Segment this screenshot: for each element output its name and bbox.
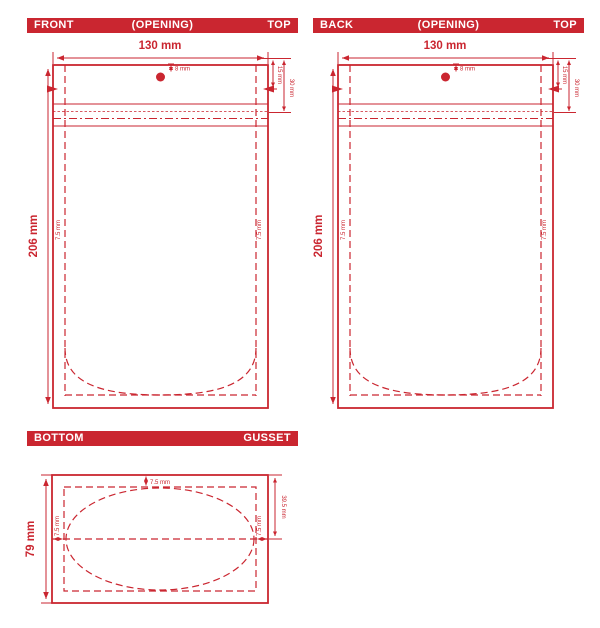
back-seal-dashed-lines [350, 65, 541, 396]
back-width-dimension-label: 130 mm [424, 40, 467, 52]
front-height-dimension-label: 206 mm [28, 215, 40, 258]
bottom-gusset-drawing: 79 mm 39.5 mm 7.5 mm 7.5 mm 7.5 mm [0, 450, 310, 628]
front-left-seal-label: 7.5 mm [56, 220, 62, 240]
bottom-panel-header: BOTTOM GUSSET [27, 431, 298, 446]
back-right-seal-label: 7.5 mm [542, 220, 548, 240]
gusset-right-seal-label: 7.5 mm [257, 516, 263, 536]
front-opening-label: (OPENING) [27, 18, 298, 33]
front-width-dimension [53, 52, 268, 64]
front-gusset-fold-curve [65, 348, 256, 395]
front-right-seal-label: 7.5 mm [257, 220, 263, 240]
gusset-left-seal-label: 7.5 mm [55, 516, 61, 536]
back-height-dimension-label: 206 mm [313, 215, 325, 258]
front-width-dimension-label: 130 mm [139, 40, 182, 52]
front-seal-dashed-lines [65, 65, 256, 396]
gusset-top-seal-label: 7.5 mm [150, 480, 170, 486]
gusset-seal-dashed-rect [64, 487, 256, 591]
gusset-opening-ellipse [66, 488, 254, 590]
front-top-label: TOP [267, 18, 291, 33]
gusset-height-dimension [41, 475, 52, 603]
gusset-label: GUSSET [243, 431, 291, 446]
back-top-label: TOP [553, 18, 577, 33]
gusset-half-height-label: 39.5 mm [280, 495, 286, 518]
front-hole-dimension-label: 8 mm [175, 67, 190, 73]
front-panel-drawing: 130 mm 206 mm 8 mm [0, 36, 300, 428]
gusset-height-dimension-label: 79 mm [25, 521, 37, 557]
back-width-dimension [338, 52, 553, 64]
dieline-canvas: FRONT (OPENING) TOP BACK (OPENING) TOP B… [0, 0, 600, 628]
back-zipper-lines [338, 104, 553, 126]
front-zipper-offset-label: 30 mm [288, 79, 294, 97]
back-zipper-offset-label: 30 mm [573, 79, 579, 97]
back-panel-drawing: 130 mm 206 mm 8 mm [300, 36, 600, 428]
front-zipper-lines [53, 104, 268, 126]
bottom-label: BOTTOM [34, 431, 84, 446]
back-pouch-outline [338, 65, 553, 408]
front-notch-offset-label: 15 mm [276, 66, 282, 84]
front-pouch-outline [53, 65, 268, 408]
back-left-seal-label: 7.5 mm [341, 220, 347, 240]
back-opening-label: (OPENING) [313, 18, 584, 33]
gusset-outline [52, 475, 268, 603]
front-panel-header: FRONT (OPENING) TOP [27, 18, 298, 33]
back-notch-offset-label: 15 mm [561, 66, 567, 84]
back-hang-hole-icon [441, 73, 450, 82]
front-hang-hole-icon [156, 73, 165, 82]
back-hole-dimension-label: 8 mm [460, 67, 475, 73]
back-panel-header: BACK (OPENING) TOP [313, 18, 584, 33]
back-gusset-fold-curve [350, 348, 541, 395]
